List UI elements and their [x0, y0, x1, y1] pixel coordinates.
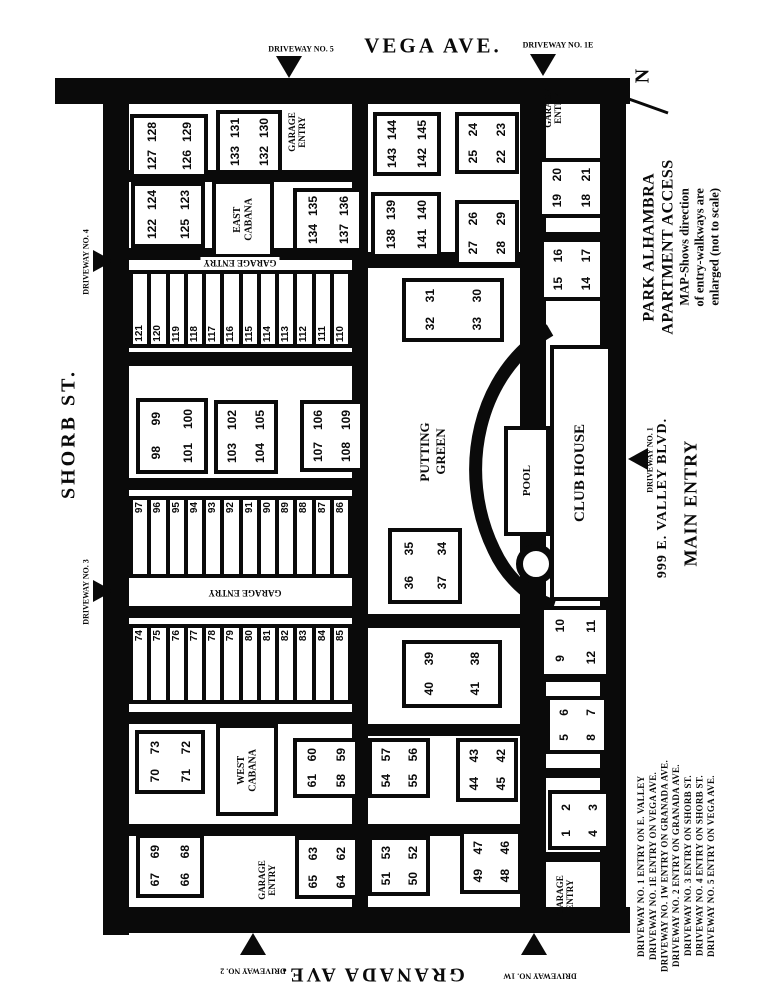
unit-41: 41 [469, 682, 481, 695]
unit-34: 34 [436, 542, 448, 555]
walk-row2 [129, 352, 352, 366]
road-shorb-left [103, 78, 129, 935]
garage-stall-113: 113 [279, 274, 293, 344]
unit-cell: 25 [459, 143, 487, 170]
garage-stall-90: 90 [261, 500, 275, 574]
unit-7: 7 [585, 709, 597, 716]
west-cabana-label: WESTCABANA [236, 749, 259, 792]
title-line-3: MAP-Shows direction [678, 159, 693, 334]
unit-cell: 14 [572, 270, 600, 298]
unit-118: 118 [190, 324, 200, 344]
unit-cell: 17 [572, 242, 600, 270]
walk-row3 [129, 478, 352, 490]
building-142-145: 144145143142 [373, 112, 441, 176]
unit-cell: 126 [169, 146, 204, 174]
unit-111: 111 [318, 324, 328, 344]
unit-cell: 49 [464, 862, 491, 890]
title-line-5: enlarged (not to scale) [708, 159, 723, 334]
garage-stall-86: 86 [334, 500, 348, 574]
garage-stall-84: 84 [316, 628, 330, 700]
unit-cell: 131 [220, 114, 249, 142]
driveway-no-4-arrow-icon [93, 250, 113, 272]
unit-60: 60 [306, 748, 318, 761]
unit-138: 138 [385, 229, 397, 249]
garage-stall-78: 78 [206, 628, 220, 700]
unit-cell: 62 [327, 840, 355, 868]
walk-mid3 [368, 724, 520, 736]
unit-37: 37 [436, 576, 448, 589]
unit-cell: 8 [577, 725, 604, 750]
unit-98: 98 [150, 446, 162, 459]
unit-144: 144 [386, 120, 398, 140]
unit-cell: 48 [491, 862, 518, 890]
walk-row5 [129, 712, 352, 724]
unit-cell: 63 [299, 840, 327, 868]
unit-61: 61 [306, 774, 318, 787]
unit-59: 59 [335, 748, 347, 761]
walk-east4 [546, 768, 604, 778]
driveway-legend: DRIVEWAY NO. 1 ENTRY ON E. VALLEY DRIVEW… [636, 760, 718, 972]
walk-east5 [546, 852, 604, 862]
garage-stall-77: 77 [188, 628, 202, 700]
unit-cell: 2 [552, 794, 579, 820]
building-98-101: 9910098101 [136, 398, 208, 474]
north-label: N [632, 69, 655, 83]
garage-entry-ne: GARAGEENTRY [543, 88, 563, 128]
unit-20: 20 [551, 168, 563, 181]
unit-cell: 19 [542, 188, 571, 214]
driveway-no-3-arrow-icon [93, 580, 113, 602]
street-shorb-st: SHORB ST. [58, 369, 81, 499]
unit-cell: 58 [326, 768, 355, 794]
unit-36: 36 [403, 576, 415, 589]
unit-cell: 31 [406, 282, 453, 310]
unit-116: 116 [226, 324, 236, 344]
unit-31: 31 [424, 289, 436, 302]
unit-56: 56 [407, 748, 419, 761]
unit-107: 107 [312, 442, 324, 462]
unit-122: 122 [146, 219, 158, 239]
unit-cell: 145 [407, 116, 437, 144]
unit-27: 27 [467, 241, 479, 254]
garage-stall-88: 88 [297, 500, 311, 574]
street-granada-ave: GRANADA AVE. [279, 963, 465, 986]
unit-46: 46 [499, 841, 511, 854]
unit-14: 14 [580, 277, 592, 290]
unit-110: 110 [336, 324, 346, 344]
unit-69: 69 [149, 845, 161, 858]
unit-125: 125 [179, 219, 191, 239]
unit-114: 114 [263, 324, 273, 344]
unit-21: 21 [580, 168, 592, 181]
unit-cell: 27 [459, 233, 487, 262]
unit-112: 112 [299, 324, 309, 344]
garage-stall-92: 92 [224, 500, 238, 574]
unit-cell: 47 [464, 834, 491, 862]
garage-stall-120: 120 [151, 274, 165, 344]
unit-19: 19 [551, 194, 563, 207]
unit-106: 106 [312, 410, 324, 430]
garage-entry-se: GARAGEENTRY [555, 875, 575, 915]
unit-99: 99 [150, 412, 162, 425]
unit-32: 32 [424, 317, 436, 330]
garage-entry-sw: GARAGEENTRY [257, 860, 277, 900]
garage-stall-111: 111 [316, 274, 330, 344]
unit-44: 44 [468, 777, 480, 790]
title-line-2: APARTMENT ACCESS [659, 159, 678, 334]
driveway-no-2-label: DRIVEWAY NO. 2 [220, 967, 285, 976]
unit-cell: 72 [170, 734, 201, 762]
unit-cell: 46 [491, 834, 518, 862]
unit-101: 101 [182, 443, 194, 463]
unit-cell: 102 [218, 404, 246, 437]
unit-cell: 67 [140, 866, 170, 894]
garage-stall-85: 85 [334, 628, 348, 700]
building-122-125: 124123122125 [131, 182, 205, 248]
garage-row-110-121: 121120119118117116115114113112111110 [129, 270, 352, 348]
unit-39: 39 [423, 652, 435, 665]
building-126-129: 128129127126 [130, 114, 208, 178]
unit-134: 134 [307, 224, 319, 244]
unit-74: 74 [135, 628, 145, 643]
garage-row-86-97: 979695949392919089888786 [129, 496, 352, 578]
unit-45: 45 [495, 777, 507, 790]
unit-cell: 139 [375, 196, 406, 225]
driveway-no-1e-arrow-icon [530, 54, 556, 76]
club-house: CLUB HOUSE [550, 345, 612, 601]
unit-65: 65 [307, 875, 319, 888]
unit-64: 64 [335, 875, 347, 888]
title-line-1: PARK ALHAMBRA [639, 159, 658, 334]
main-entry-label: MAIN ENTRY [681, 440, 702, 567]
unit-cell: 109 [332, 404, 360, 436]
unit-62: 62 [335, 847, 347, 860]
driveway-no-1w-arrow-icon [521, 933, 547, 955]
unit-12: 12 [585, 651, 597, 664]
unit-77: 77 [190, 628, 200, 643]
unit-cell: 15 [544, 270, 572, 298]
driveway-no-5-arrow-icon [276, 56, 302, 78]
unit-cell: 30 [453, 282, 500, 310]
garage-stall-74: 74 [133, 628, 147, 700]
unit-cell: 45 [487, 770, 514, 798]
unit-139: 139 [385, 200, 397, 220]
garage-stall-87: 87 [316, 500, 330, 574]
building-30-33: 31303233 [402, 278, 504, 342]
garage-stall-110: 110 [334, 274, 348, 344]
unit-93: 93 [208, 500, 218, 515]
unit-66: 66 [179, 873, 191, 886]
unit-cell: 140 [406, 196, 437, 225]
unit-120: 120 [153, 323, 163, 344]
unit-cell: 9 [544, 642, 575, 674]
unit-133: 133 [229, 146, 241, 166]
garage-row-74-85: 747576777879808182838485 [129, 624, 352, 704]
street-valley-blvd: 999 E. VALLEY BLVD. [655, 418, 671, 578]
unit-140: 140 [416, 200, 428, 220]
unit-cell: 40 [406, 674, 452, 704]
unit-cell: 103 [218, 437, 246, 470]
unit-cell: 130 [249, 114, 278, 142]
unit-86: 86 [336, 500, 346, 515]
title-line-4: of entry-walkways are [693, 159, 708, 334]
unit-cell: 21 [571, 162, 600, 188]
unit-3: 3 [587, 804, 599, 811]
garage-entry-aisle2: GARAGE ENTRY [206, 587, 285, 599]
driveway-no-4-label: DRIVEWAY NO. 4 [82, 229, 91, 294]
driveway-no-5-label: DRIVEWAY NO. 5 [268, 45, 333, 54]
unit-92: 92 [226, 500, 236, 515]
garage-stall-115: 115 [243, 274, 257, 344]
unit-25: 25 [467, 150, 479, 163]
garage-stall-83: 83 [297, 628, 311, 700]
unit-84: 84 [318, 628, 328, 643]
unit-cell: 60 [297, 742, 326, 768]
unit-143: 143 [386, 148, 398, 168]
unit-79: 79 [226, 628, 236, 643]
map-title-block: PARK ALHAMBRA APARTMENT ACCESS MAP-Shows… [639, 159, 722, 334]
unit-cell: 107 [304, 436, 332, 468]
building-106-109: 106109107108 [300, 400, 364, 472]
unit-18: 18 [580, 194, 592, 207]
unit-89: 89 [281, 500, 291, 515]
unit-100: 100 [182, 409, 194, 429]
garage-entry-north: GARAGEENTRY [287, 112, 307, 152]
driveway-no-2-arrow-icon [240, 933, 266, 955]
building-66-69: 69686766 [136, 834, 204, 898]
unit-cell: 143 [377, 144, 407, 172]
unit-cell: 12 [575, 642, 606, 674]
unit-129: 129 [181, 122, 193, 142]
unit-cell: 28 [487, 233, 515, 262]
unit-cell: 104 [246, 437, 274, 470]
building-9-12: 1011912 [540, 606, 610, 678]
unit-135: 135 [307, 196, 319, 216]
unit-145: 145 [416, 120, 428, 140]
unit-53: 53 [380, 846, 392, 859]
unit-cell: 6 [550, 700, 577, 725]
unit-80: 80 [245, 628, 255, 643]
unit-cell: 122 [135, 215, 168, 244]
unit-51: 51 [380, 872, 392, 885]
unit-103: 103 [226, 443, 238, 463]
unit-cell: 106 [304, 404, 332, 436]
unit-cell: 1 [552, 820, 579, 846]
unit-50: 50 [407, 872, 419, 885]
unit-94: 94 [190, 500, 200, 515]
unit-24: 24 [467, 123, 479, 136]
unit-137: 137 [338, 224, 350, 244]
unit-cell: 61 [297, 768, 326, 794]
building-134-137: 135136134137 [293, 188, 363, 252]
unit-16: 16 [552, 249, 564, 262]
unit-83: 83 [299, 628, 309, 643]
unit-10: 10 [554, 619, 566, 632]
unit-cell: 124 [135, 186, 168, 215]
driveway-no-1e-label: DRIVEWAY NO. 1E [523, 41, 594, 50]
building-46-49: 47464948 [460, 830, 522, 894]
garage-stall-95: 95 [170, 500, 184, 574]
unit-26: 26 [467, 212, 479, 225]
unit-28: 28 [495, 241, 507, 254]
unit-35: 35 [403, 542, 415, 555]
unit-6: 6 [558, 709, 570, 716]
unit-cell: 32 [406, 310, 453, 338]
legend-line-7: DRIVEWAY NO. 5 ENTRY ON VEGA AVE. [706, 760, 718, 972]
unit-cell: 42 [487, 742, 514, 770]
street-vega-ave: VEGA AVE. [364, 34, 502, 59]
garage-stall-97: 97 [133, 500, 147, 574]
unit-130: 130 [258, 118, 270, 138]
unit-cell: 10 [544, 610, 575, 642]
garage-stall-117: 117 [206, 274, 220, 344]
unit-40: 40 [423, 682, 435, 695]
unit-cell: 123 [168, 186, 201, 215]
unit-121: 121 [135, 323, 145, 344]
legend-line-6: DRIVEWAY NO. 4 ENTRY ON SHORB ST. [695, 760, 707, 972]
building-138-141: 139140138141 [371, 192, 441, 258]
unit-126: 126 [181, 150, 193, 170]
unit-cell: 39 [406, 644, 452, 674]
road-granada-bottom [103, 907, 630, 933]
unit-cell: 141 [406, 225, 437, 254]
building-58-61: 60596158 [293, 738, 359, 798]
unit-4: 4 [587, 830, 599, 837]
unit-cell: 127 [134, 146, 169, 174]
garage-stall-119: 119 [170, 274, 184, 344]
unit-131: 131 [229, 118, 241, 138]
unit-cell: 133 [220, 142, 249, 170]
unit-108: 108 [340, 442, 352, 462]
unit-cell: 125 [168, 215, 201, 244]
unit-cell: 101 [172, 436, 204, 470]
unit-cell: 108 [332, 436, 360, 468]
unit-cell: 5 [550, 725, 577, 750]
unit-48: 48 [499, 869, 511, 882]
building-102-105: 102105103104 [214, 400, 278, 474]
unit-cell: 35 [392, 532, 425, 566]
unit-cell: 3 [579, 794, 606, 820]
unit-90: 90 [263, 500, 273, 515]
unit-67: 67 [149, 873, 161, 886]
west-cabana: WESTCABANA [216, 724, 278, 816]
unit-cell: 135 [297, 192, 328, 220]
garage-stall-121: 121 [133, 274, 147, 344]
unit-128: 128 [146, 122, 158, 142]
garage-entry-aisle1: GARAGE ENTRY [201, 257, 280, 269]
unit-cell: 98 [140, 436, 172, 470]
unit-113: 113 [281, 324, 291, 344]
building-1-4: 2314 [548, 790, 610, 850]
east-cabana-label: EASTCABANA [232, 198, 255, 241]
unit-9: 9 [554, 655, 566, 662]
garage-stall-93: 93 [206, 500, 220, 574]
garage-stall-114: 114 [261, 274, 275, 344]
unit-78: 78 [208, 628, 218, 643]
legend-line-1: DRIVEWAY NO. 1 ENTRY ON E. VALLEY [636, 760, 648, 972]
building-38-41: 39384041 [402, 640, 502, 708]
unit-cell: 142 [407, 144, 437, 172]
garage-stall-91: 91 [243, 500, 257, 574]
unit-cell: 16 [544, 242, 572, 270]
unit-43: 43 [468, 749, 480, 762]
unit-cell: 59 [326, 742, 355, 768]
unit-70: 70 [149, 769, 161, 782]
driveway-no-1w-label: DRIVEWAY NO. 1W [503, 972, 576, 981]
pool: POOL [504, 426, 550, 536]
unit-cell: 37 [425, 566, 458, 600]
unit-47: 47 [472, 841, 484, 854]
unit-75: 75 [153, 628, 163, 643]
unit-cell: 129 [169, 118, 204, 146]
unit-30: 30 [471, 289, 483, 302]
unit-87: 87 [318, 500, 328, 515]
unit-15: 15 [552, 277, 564, 290]
unit-119: 119 [172, 324, 182, 344]
unit-cell: 53 [372, 840, 399, 866]
building-54-57: 57565455 [368, 738, 430, 798]
unit-cell: 51 [372, 866, 399, 892]
unit-63: 63 [307, 847, 319, 860]
unit-132: 132 [258, 146, 270, 166]
unit-cell: 138 [375, 225, 406, 254]
unit-cell: 38 [452, 644, 498, 674]
unit-cell: 41 [452, 674, 498, 704]
building-14-17: 16171514 [540, 238, 604, 301]
pool-label: POOL [521, 465, 534, 496]
building-26-29: 26292728 [455, 200, 519, 266]
unit-58: 58 [335, 774, 347, 787]
unit-cell: 56 [399, 742, 426, 768]
unit-cell: 132 [249, 142, 278, 170]
unit-cell: 43 [460, 742, 487, 770]
unit-141: 141 [416, 229, 428, 249]
garage-stall-118: 118 [188, 274, 202, 344]
legend-line-4: DRIVEWAY NO. 2 ENTRY ON GRANADA AVE. [671, 760, 683, 972]
unit-85: 85 [336, 628, 346, 643]
garage-stall-112: 112 [297, 274, 311, 344]
unit-33: 33 [471, 317, 483, 330]
unit-96: 96 [153, 500, 163, 515]
unit-cell: 69 [140, 838, 170, 866]
garage-stall-79: 79 [224, 628, 238, 700]
unit-cell: 134 [297, 220, 328, 248]
unit-cell: 4 [579, 820, 606, 846]
unit-82: 82 [281, 628, 291, 643]
putting-green: PUTTINGGREEN [417, 422, 449, 481]
garage-stall-96: 96 [151, 500, 165, 574]
walk-mid2 [368, 614, 520, 628]
unit-cell: 73 [139, 734, 170, 762]
building-22-25: 24232522 [455, 112, 519, 174]
unit-76: 76 [172, 628, 182, 643]
unit-cell: 100 [172, 402, 204, 436]
unit-cell: 65 [299, 868, 327, 896]
garage-stall-80: 80 [243, 628, 257, 700]
unit-cell: 64 [327, 868, 355, 896]
unit-cell: 68 [170, 838, 200, 866]
unit-1: 1 [560, 830, 572, 837]
unit-cell: 66 [170, 866, 200, 894]
legend-line-5: DRIVEWAY NO. 3 ENTRY ON SHORB ST. [683, 760, 695, 972]
unit-102: 102 [226, 410, 238, 430]
building-18-21: 20211918 [538, 158, 604, 218]
unit-17: 17 [580, 249, 592, 262]
garage-stall-94: 94 [188, 500, 202, 574]
unit-cell: 128 [134, 118, 169, 146]
unit-cell: 34 [425, 532, 458, 566]
unit-8: 8 [585, 734, 597, 741]
